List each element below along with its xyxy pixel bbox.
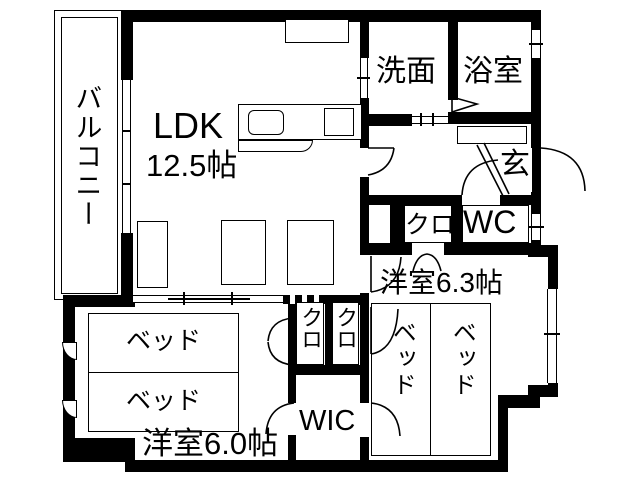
wall-bathroom-bottom xyxy=(448,112,541,124)
wall-bottom-main xyxy=(125,460,508,472)
wall-left-lower xyxy=(63,295,75,445)
wic-label: WIC xyxy=(299,406,355,436)
wall-wic-west-a xyxy=(288,375,296,403)
wall-divider-e xyxy=(360,375,369,403)
window-tick xyxy=(420,113,422,126)
floor-plan: バルコニー LDK 12.5帖 洗面 浴室 玄 クロ WC 洋室6.3帖 ベッド… xyxy=(0,0,641,481)
wall-wcrow-top-left xyxy=(362,195,460,205)
ldk-label: LDK xyxy=(153,107,223,145)
bed-label: ベッド xyxy=(389,320,414,445)
wall-divider-a xyxy=(360,10,369,58)
ldk-furniture xyxy=(287,220,334,285)
window-tick xyxy=(528,226,544,228)
window-tick xyxy=(529,43,543,45)
wc-door-arc xyxy=(462,160,498,195)
window-tick xyxy=(357,77,370,79)
wall-divider-d xyxy=(360,293,369,375)
refrigerator xyxy=(285,19,349,43)
entrance-door-arc xyxy=(541,148,585,191)
bed-label: ベッド xyxy=(126,328,201,354)
window-tick xyxy=(432,113,434,126)
balcony-label: バルコニー xyxy=(72,84,100,264)
wall-closets-west xyxy=(288,295,296,375)
ldk-furniture xyxy=(137,221,168,288)
window-tick xyxy=(544,333,560,335)
closet-left-label: クロ xyxy=(299,306,322,364)
bedroom63-window xyxy=(547,289,557,383)
balcony-sliding-window xyxy=(122,80,131,233)
entrance-label: 玄 xyxy=(500,149,530,181)
window-tick xyxy=(183,292,185,305)
kitchen-counter-edge xyxy=(238,140,313,152)
window-tick xyxy=(122,183,131,185)
wall-closets-divider xyxy=(325,295,332,375)
wall-closets-bottom xyxy=(288,365,369,375)
wall-east3 xyxy=(498,405,508,462)
wall-wcrow-bottom-left xyxy=(362,243,412,255)
bedroom60-label: 洋室6.0帖 xyxy=(142,428,278,461)
closet-right-label: クロ xyxy=(334,306,357,364)
wall-east-b xyxy=(531,58,541,148)
ldk-size-label: 12.5帖 xyxy=(146,150,237,183)
slider-mid-line xyxy=(168,298,250,300)
bed-label: ベッド xyxy=(449,320,474,445)
ldk-door-arc xyxy=(368,148,394,175)
wall-bottom-step-left xyxy=(63,438,135,462)
wall-washroom-bathroom xyxy=(448,10,458,100)
kitchen-sink xyxy=(248,110,284,135)
bed-label: ベッド xyxy=(126,388,201,414)
kitchen-stove xyxy=(324,108,354,136)
washroom-sliding-door xyxy=(412,116,448,124)
entrance-door-leaf xyxy=(532,147,541,193)
bedroom63-label: 洋室6.3帖 xyxy=(380,268,503,297)
wall-divider-f xyxy=(360,437,369,462)
wall-east2-a xyxy=(548,245,558,289)
washroom-label: 洗面 xyxy=(376,56,436,88)
hall-closet-label: クロ xyxy=(405,212,455,238)
wall-wic-west-b xyxy=(288,435,296,462)
wall-balcony-lower xyxy=(121,233,133,303)
window-tick xyxy=(122,130,131,132)
wall-balcony-upper xyxy=(121,10,133,80)
ldk-furniture xyxy=(221,220,266,285)
window-tick xyxy=(231,292,233,305)
bathroom-label: 浴室 xyxy=(463,56,523,88)
shoe-cabinet xyxy=(457,126,527,144)
wc-label: WC xyxy=(463,206,516,240)
wall-wcrow-bottom-right xyxy=(444,243,541,255)
wall-washroom-bottom xyxy=(360,114,412,126)
wall-east-a xyxy=(531,10,541,30)
